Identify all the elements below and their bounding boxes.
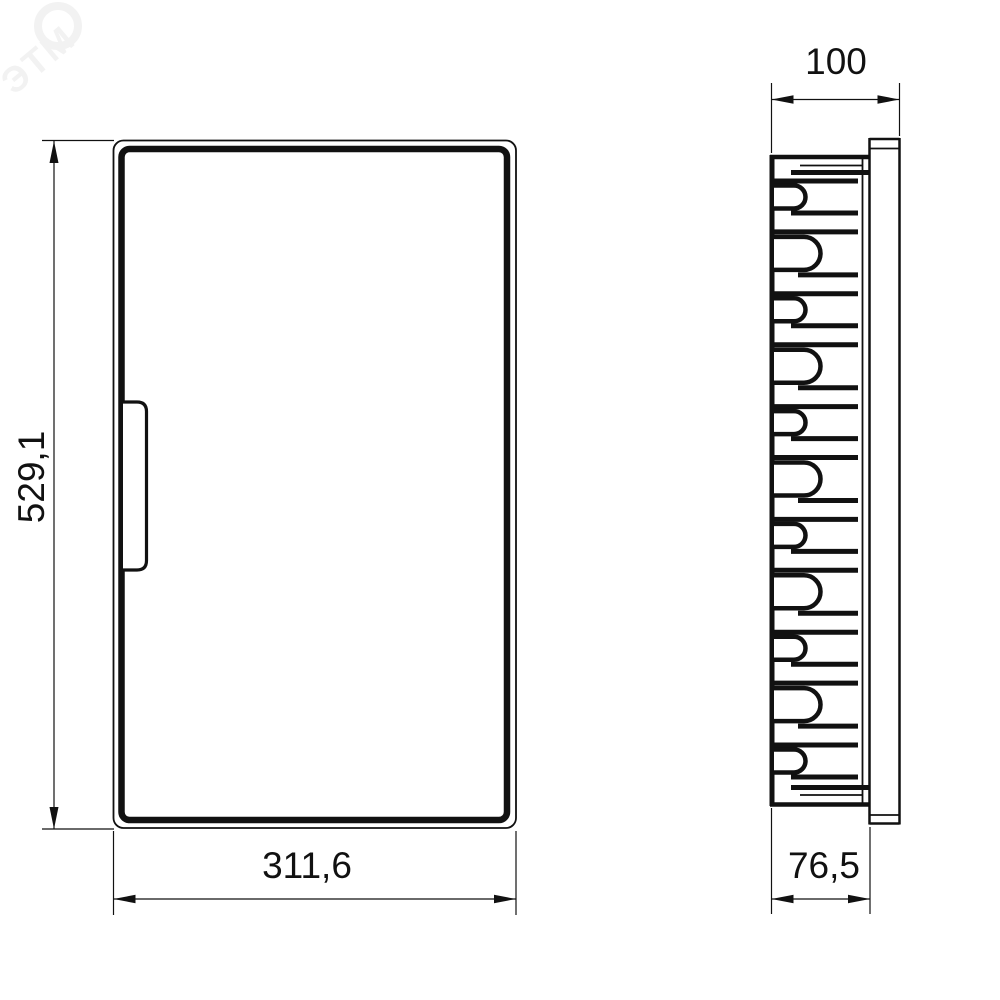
- clip-profile-small: [774, 186, 806, 209]
- arrowhead-down: [50, 807, 59, 829]
- arrowhead-left: [772, 95, 794, 103]
- clip-profile-large: [774, 575, 821, 608]
- drawing-svg: ЭТМ 529,1 311,6: [0, 0, 1000, 1000]
- front-view: 529,1 311,6: [11, 141, 516, 916]
- arrowhead-up: [50, 141, 59, 163]
- body-depth-label: 76,5: [788, 845, 860, 886]
- clip-profile-large: [774, 350, 821, 383]
- height-dimension: 529,1: [11, 141, 114, 830]
- side-view: 100: [770, 41, 900, 914]
- clip-profile-small: [774, 750, 806, 773]
- clip-profile-small: [774, 298, 806, 321]
- width-dimension-label: 311,6: [262, 845, 352, 886]
- clip-profile-small: [774, 411, 806, 434]
- body-profile: [770, 155, 870, 806]
- arrowhead-left: [114, 895, 136, 903]
- clip-profile-small: [774, 637, 806, 660]
- body-depth-dimension: 76,5: [772, 808, 871, 914]
- door-handle: [123, 402, 147, 570]
- overall-depth-dimension: 100: [772, 41, 900, 153]
- clip-array: [774, 181, 858, 777]
- arrowhead-right: [878, 95, 900, 103]
- clip-profile-large: [774, 237, 821, 270]
- enclosure-door-face: [122, 149, 508, 820]
- height-dimension-label: 529,1: [11, 431, 52, 524]
- arrowhead-right: [494, 895, 516, 903]
- overall-depth-label: 100: [805, 41, 867, 82]
- width-dimension: 311,6: [114, 831, 517, 915]
- watermark: ЭТМ: [0, 6, 83, 102]
- arrowhead-right: [848, 895, 870, 903]
- technical-drawing-page: ЭТМ 529,1 311,6: [0, 0, 1000, 1000]
- door-profile: [870, 138, 900, 825]
- watermark-logo-text: ЭТМ: [0, 17, 83, 102]
- arrowhead-left: [772, 895, 794, 903]
- clip-profile-large: [774, 688, 821, 721]
- clip-profile-small: [774, 524, 806, 547]
- clip-profile-large: [774, 463, 821, 496]
